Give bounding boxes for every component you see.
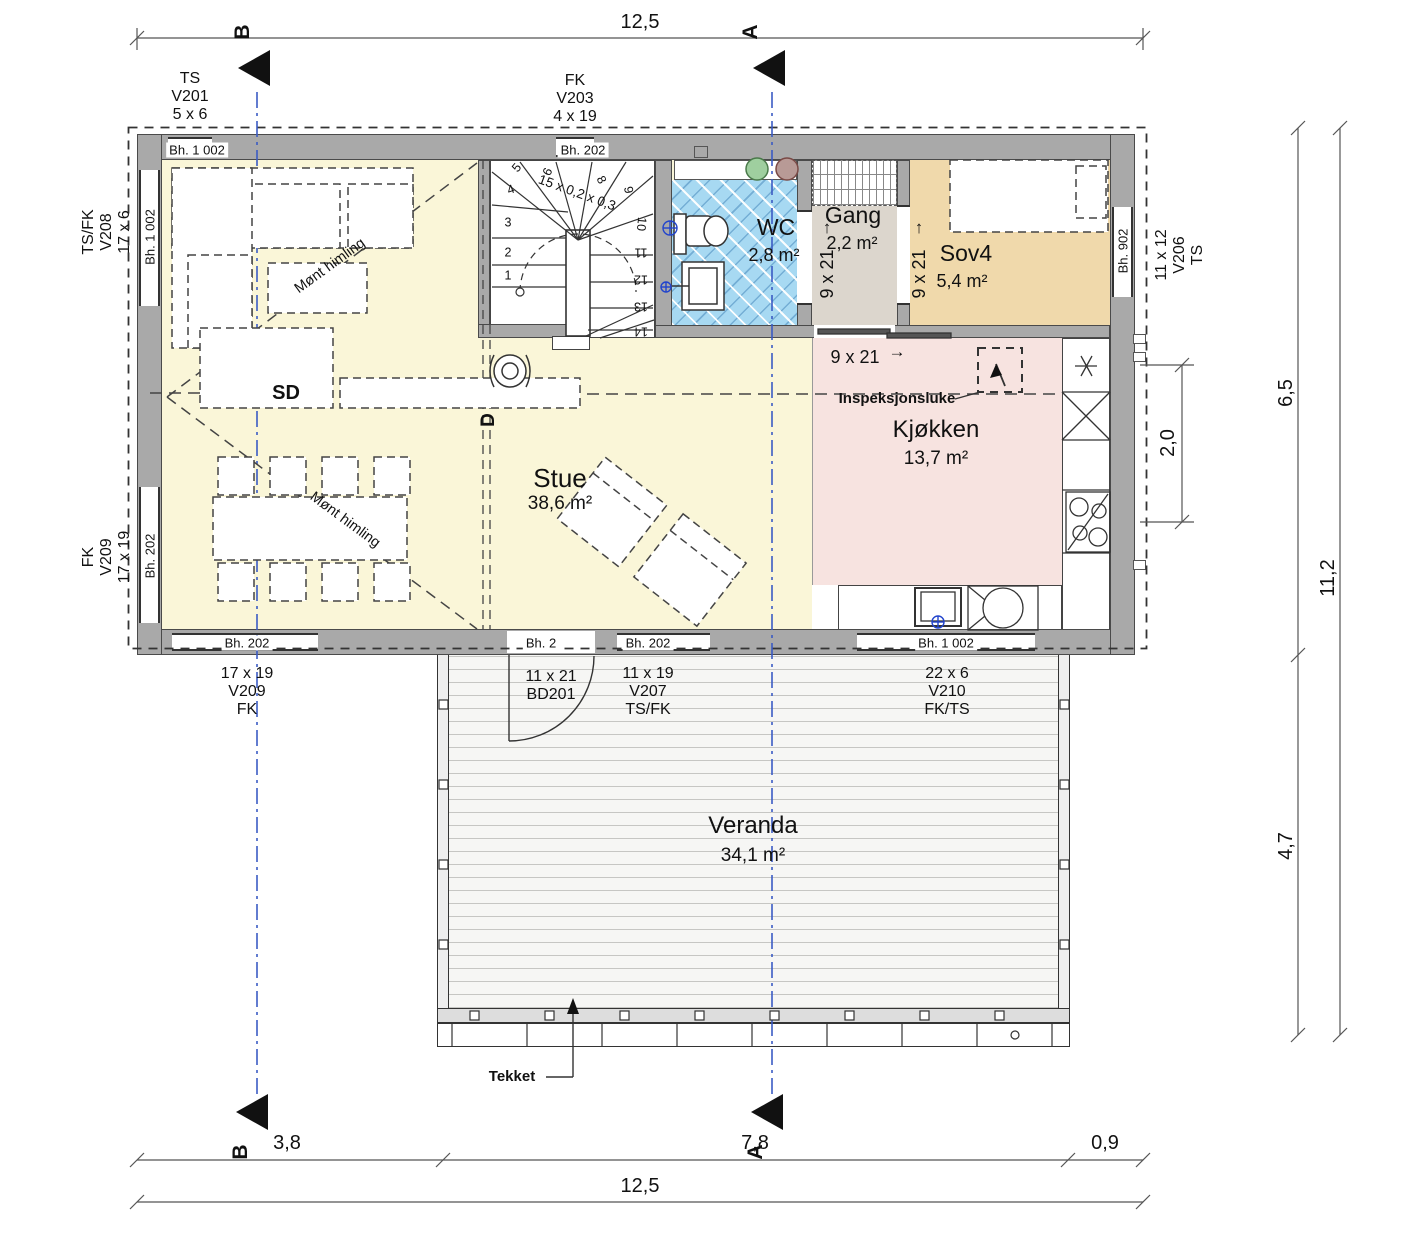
room-area-veranda: 34,1 m² bbox=[721, 847, 785, 865]
door-label-gang-sov4: 9 x 21 bbox=[910, 249, 928, 298]
dim-bottom-left: 3,8 bbox=[273, 1134, 301, 1152]
section-b-bottom: B bbox=[232, 1144, 250, 1159]
window-label-v208: TS/FK V208 17 x 6 bbox=[80, 209, 134, 254]
section-sd: SD bbox=[272, 384, 300, 402]
dim-right-lower: 4,7 bbox=[1277, 832, 1295, 860]
window-label-v210: 22 x 6 V210 FK/TS bbox=[924, 665, 969, 719]
dim-bottom-total: 12,5 bbox=[621, 1177, 660, 1195]
section-a-top: A bbox=[742, 24, 760, 39]
section-d: D bbox=[480, 413, 498, 427]
dim-kitchen-width: 2,0 bbox=[1159, 429, 1177, 457]
bh-top-center: Bh. 202 bbox=[558, 143, 609, 158]
arrow-up-icon: ↑ bbox=[823, 219, 832, 237]
window-label-v209-bottom: 17 x 19 V209 FK bbox=[221, 665, 273, 719]
linework-layer bbox=[0, 0, 1427, 1247]
annotation-inspeksjonsluke: Inspeksjonsluke bbox=[839, 390, 956, 408]
room-label-veranda: Veranda bbox=[708, 817, 797, 835]
stair-step-14: 14 bbox=[634, 325, 648, 338]
door-label-kitchen: 9 x 21 bbox=[830, 348, 879, 366]
bh-left-lower: Bh. 202 bbox=[143, 531, 158, 582]
dim-top: 12,5 bbox=[621, 13, 660, 31]
floor-plan-canvas: 12,5 6,5 11,2 4,7 2,0 3,8 7,8 0,9 12,5 B… bbox=[0, 0, 1427, 1247]
window-label-v206: 11 x 12 V206 TS bbox=[1153, 229, 1207, 280]
bh-bottom-2: Bh. 2 bbox=[523, 636, 559, 651]
room-label-stue: Stue bbox=[533, 469, 587, 487]
section-b-top: B bbox=[234, 24, 252, 39]
room-area-stue: 38,6 m² bbox=[528, 495, 592, 513]
window-label-v207: 11 x 19 V207 TS/FK bbox=[622, 665, 673, 719]
bh-bottom-4: Bh. 1 002 bbox=[915, 636, 977, 651]
bh-bottom-3: Bh. 202 bbox=[623, 636, 674, 651]
bh-bottom-1: Bh. 202 bbox=[222, 636, 273, 651]
stair-step-11: 11 bbox=[635, 246, 648, 259]
bh-left-upper: Bh. 1 002 bbox=[143, 206, 158, 268]
room-label-sov4: Sov4 bbox=[940, 244, 992, 262]
stair-step-2: 2 bbox=[505, 247, 512, 260]
room-label-kjokken: Kjøkken bbox=[893, 421, 980, 439]
room-label-gang: Gang bbox=[825, 206, 881, 224]
kitchen-fixtures bbox=[818, 329, 1110, 630]
arrow-right-icon: → bbox=[889, 343, 906, 361]
window-label-v201: TS V201 5 x 6 bbox=[171, 70, 208, 124]
door-label-gang-wc: 9 x 21 bbox=[818, 249, 836, 298]
section-a-bottom: A bbox=[747, 1144, 765, 1159]
room-area-kjokken: 13,7 m² bbox=[904, 450, 968, 468]
dim-right-upper: 6,5 bbox=[1277, 379, 1295, 407]
stair-step-10: 10 bbox=[634, 217, 648, 232]
window-label-v209-left: FK V209 17 x 19 bbox=[80, 531, 134, 583]
dim-right-total: 11,2 bbox=[1319, 559, 1337, 596]
room-label-wc: WC bbox=[757, 218, 795, 236]
stair-step-12: 12 bbox=[634, 273, 648, 286]
stair-step-13: 13 bbox=[634, 300, 648, 313]
dim-bottom-right: 0,9 bbox=[1091, 1134, 1119, 1152]
veranda-structure bbox=[439, 700, 1069, 1077]
annotation-tekket: Tekket bbox=[489, 1068, 535, 1086]
window-label-v203: FK V203 4 x 19 bbox=[553, 72, 597, 126]
room-area-sov4: 5,4 m² bbox=[936, 272, 987, 290]
stair-step-1: 1 bbox=[505, 270, 512, 283]
bh-top-left: Bh. 1 002 bbox=[166, 143, 228, 158]
stair-step-3: 3 bbox=[505, 217, 512, 230]
door-label-bd201: 11 x 21 BD201 bbox=[525, 668, 576, 704]
bh-right: Bh. 902 bbox=[1116, 226, 1131, 277]
room-area-wc: 2,8 m² bbox=[748, 246, 799, 264]
arrow-up-icon: ↑ bbox=[915, 219, 924, 237]
